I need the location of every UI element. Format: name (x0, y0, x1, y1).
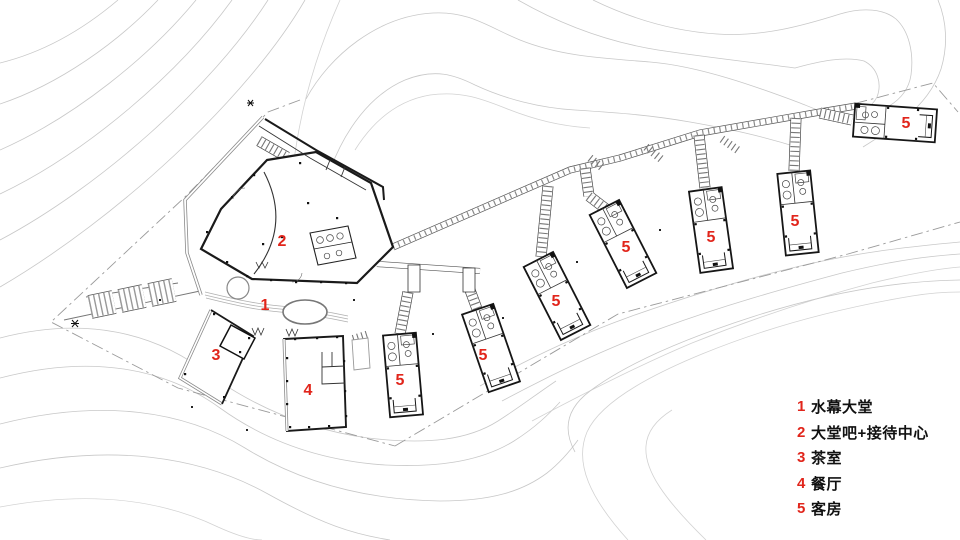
guest-room-buildings (383, 104, 937, 418)
legend-label: 餐厅 (811, 473, 842, 494)
legend-label: 水幕大堂 (811, 396, 873, 417)
legend: 1 水幕大堂 2 大堂吧+接待中心 3 茶室 4 餐厅 5 客房 (797, 394, 929, 522)
entry-stairs (64, 283, 200, 320)
plan-marker-restaurant: 4 (304, 383, 313, 399)
legend-label: 客房 (811, 498, 842, 519)
legend-num: 5 (797, 500, 811, 517)
plan-marker-guestroom-e: 5 (707, 230, 716, 246)
legend-item-restaurant: 4 餐厅 (797, 471, 929, 497)
pond-circle (227, 277, 249, 299)
plan-marker-guestroom-c: 5 (552, 294, 561, 310)
plan-marker-guestroom-d: 5 (622, 240, 631, 256)
legend-num: 1 (797, 398, 811, 415)
plan-marker-guestroom-g: 5 (902, 116, 911, 132)
plan-marker-guestroom-f: 5 (791, 214, 800, 230)
plan-marker-guestroom-a: 5 (396, 373, 405, 389)
site-plan-page: 1 2 3 4 5 5 5 5 5 5 5 1 水幕大堂 2 大堂吧+接待中心 … (0, 0, 960, 540)
legend-num: 4 (797, 475, 811, 492)
plan-marker-guestroom-b: 5 (479, 348, 488, 364)
legend-num: 3 (797, 449, 811, 466)
plan-marker-lobby-bar: 2 (278, 234, 287, 250)
legend-label: 大堂吧+接待中心 (811, 422, 929, 443)
legend-item-lobby-bar: 2 大堂吧+接待中心 (797, 420, 929, 446)
legend-item-guestroom: 5 客房 (797, 496, 929, 522)
legend-label: 茶室 (811, 447, 842, 468)
legend-item-tea-room: 3 茶室 (797, 445, 929, 471)
legend-item-water-lobby: 1 水幕大堂 (797, 394, 929, 420)
legend-num: 2 (797, 424, 811, 441)
building-restaurant (284, 336, 370, 431)
site-boundary (51, 83, 960, 446)
plan-marker-water-lobby: 1 (261, 298, 270, 314)
plan-marker-tea-room: 3 (212, 348, 221, 364)
water-features (205, 277, 348, 324)
pond-oval (283, 300, 327, 324)
